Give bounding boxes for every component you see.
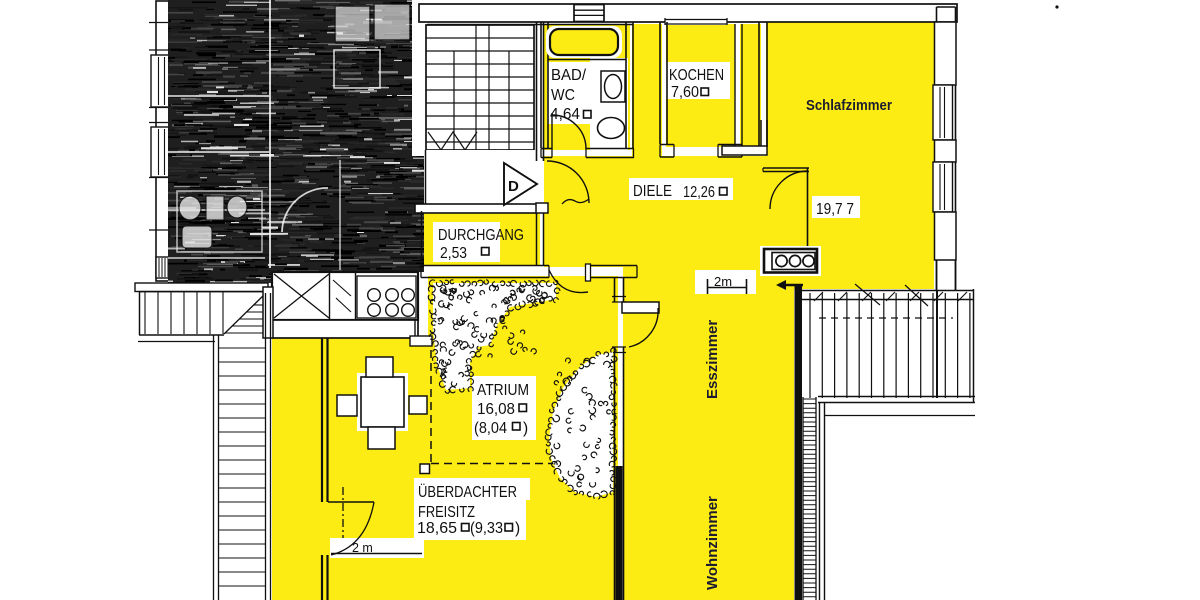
svg-text:FREISITZ: FREISITZ bbox=[418, 504, 475, 521]
svg-text:): ) bbox=[515, 520, 520, 537]
svg-text:DURCHGANG: DURCHGANG bbox=[438, 227, 524, 244]
svg-text:(9,33: (9,33 bbox=[470, 520, 503, 537]
svg-text:): ) bbox=[523, 420, 528, 437]
svg-text:Esszimmer: Esszimmer bbox=[704, 320, 721, 399]
svg-text:ÜBERDACHTER: ÜBERDACHTER bbox=[418, 483, 517, 501]
svg-text:18,65: 18,65 bbox=[417, 520, 457, 537]
svg-text:12,26: 12,26 bbox=[683, 184, 715, 201]
svg-text:DIELE: DIELE bbox=[633, 183, 672, 200]
svg-text:16,08: 16,08 bbox=[477, 401, 515, 418]
svg-text:2 m: 2 m bbox=[352, 541, 373, 555]
svg-text:19,7 7: 19,7 7 bbox=[816, 201, 854, 218]
svg-text:KOCHEN: KOCHEN bbox=[669, 67, 724, 84]
svg-text:Wohnzimmer: Wohnzimmer bbox=[704, 496, 721, 590]
svg-text:ATRIUM: ATRIUM bbox=[477, 382, 529, 399]
svg-text:2,53: 2,53 bbox=[440, 245, 467, 262]
svg-text:Schlafzimmer: Schlafzimmer bbox=[806, 98, 892, 114]
svg-text:WC: WC bbox=[551, 87, 575, 104]
svg-text:(8,04: (8,04 bbox=[474, 420, 507, 437]
svg-text:D: D bbox=[508, 178, 519, 195]
svg-text:7,60: 7,60 bbox=[671, 84, 699, 101]
svg-text:BAD/: BAD/ bbox=[551, 67, 587, 84]
svg-text:2m: 2m bbox=[714, 274, 732, 289]
svg-text:4,64: 4,64 bbox=[550, 106, 580, 123]
